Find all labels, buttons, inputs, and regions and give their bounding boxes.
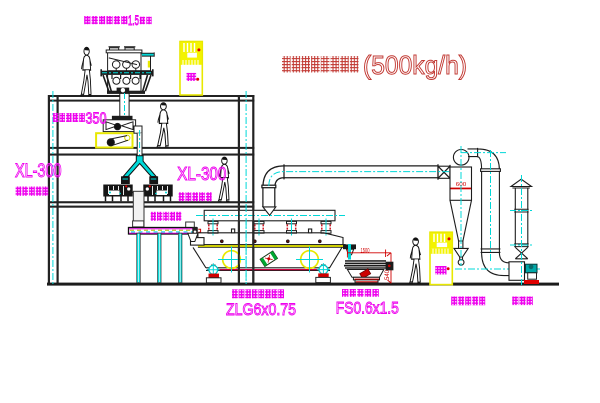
svg-text:XL-300: XL-300 bbox=[15, 161, 62, 182]
svg-text:1.5: 1.5 bbox=[128, 12, 139, 28]
svg-text:FS0.6x1.5: FS0.6x1.5 bbox=[336, 299, 399, 318]
svg-text:1500: 1500 bbox=[361, 248, 370, 254]
svg-text:ZLG6x0.75: ZLG6x0.75 bbox=[226, 300, 296, 319]
svg-text:XL-300: XL-300 bbox=[177, 164, 226, 184]
svg-text:540: 540 bbox=[385, 269, 391, 280]
svg-text:350: 350 bbox=[86, 110, 107, 127]
svg-text:(500kg/h): (500kg/h) bbox=[363, 50, 467, 80]
